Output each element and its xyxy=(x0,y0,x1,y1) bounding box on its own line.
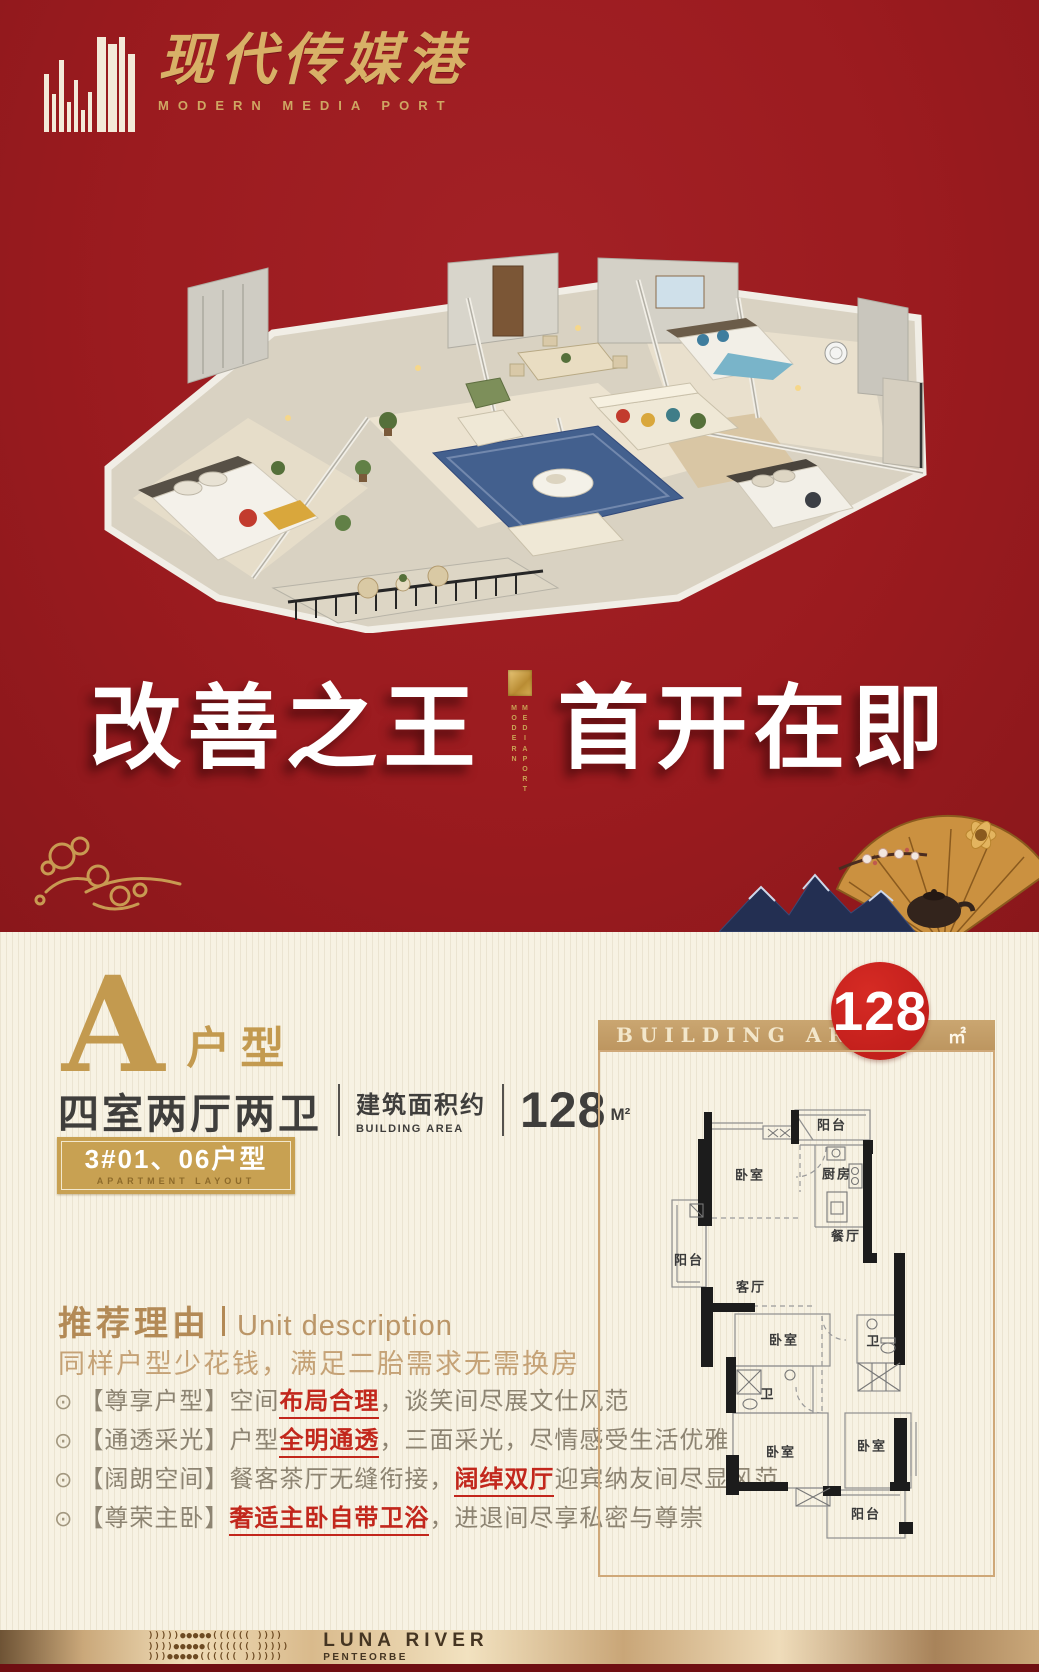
badge-title: 3#01、06户型 xyxy=(85,1145,268,1174)
room-label: 阳台 xyxy=(674,1250,704,1269)
bullet-pre: 餐客茶厅无缝衔接， xyxy=(229,1466,454,1493)
unit-description-list: ⊙【尊享户型】空间布局合理，谈笑间尽展文仕风范⊙【通透采光】户型全明通透，三面采… xyxy=(54,1390,594,1546)
bullet-pre: 空间 xyxy=(229,1388,279,1415)
bullet-highlight: 阔绰双厅 xyxy=(454,1466,554,1497)
fan-decoration-icon xyxy=(719,797,1039,932)
room-label: 卫 xyxy=(760,1384,775,1403)
unit-spec-row: 四室两厅两卫 建筑面积约 BUILDING AREA 128 M² xyxy=(58,1080,630,1140)
room-label: 卧室 xyxy=(766,1442,796,1461)
divider xyxy=(222,1306,225,1336)
room-label: 卫 xyxy=(866,1331,881,1350)
brand-name-en: MODERN MEDIA PORT xyxy=(158,98,468,113)
footer-bar: )))))●●●●●(((((( ))))))))●●●●●((((((( ))… xyxy=(0,1630,1039,1664)
footer-subtitle: PENTEORBE xyxy=(323,1652,488,1663)
area-label-en: BUILDING AREA xyxy=(356,1123,486,1135)
description-bullet: ⊙【阔朗空间】餐客茶厅无缝衔接，阔绰双厅迎宾纳友间尽显风范 xyxy=(54,1468,594,1494)
room-label: 厨房 xyxy=(822,1164,852,1183)
bullet-tag: 【尊荣主卧】 xyxy=(79,1505,229,1532)
bullet-icon: ⊙ xyxy=(54,1506,73,1531)
unit-rooms: 四室两厅两卫 xyxy=(58,1080,322,1140)
room-label: 卧室 xyxy=(769,1330,799,1349)
bullet-icon: ⊙ xyxy=(54,1389,73,1414)
apartment-3d-render xyxy=(38,168,958,633)
divider-word-2: MEDIAPORT xyxy=(522,704,528,795)
floorplan-panel: 阳台卧室厨房餐厅阳台客厅卧室卫卫卧室卧室阳台 xyxy=(598,1050,995,1577)
description-bullet: ⊙【尊享户型】空间布局合理，谈笑间尽展文仕风范 xyxy=(54,1390,594,1416)
hero-section: 现代传媒港 MODERN MEDIA PORT xyxy=(0,0,1039,932)
unit-type-label: 户型 xyxy=(186,1012,294,1076)
headline-divider: MODERN MEDIAPORT xyxy=(508,670,532,795)
moon-pattern-row: ))))●●●●●((((((( ))))) xyxy=(148,1642,289,1652)
gold-cloud-decoration-icon xyxy=(28,830,188,925)
description-bullet: ⊙【通透采光】户型全明通透，三面采光，尽情感受生活优雅 xyxy=(54,1429,594,1455)
divider xyxy=(338,1084,340,1136)
area-circle-value: 128 xyxy=(833,979,928,1043)
bullet-highlight: 奢适主卧自带卫浴 xyxy=(229,1505,429,1536)
description-subtitle: 同样户型少花钱，满足二胎需求无需换房 xyxy=(58,1342,580,1381)
bullet-pre: 户型 xyxy=(229,1427,279,1454)
apartment-badge: 3#01、06户型 APARTMENT LAYOUT xyxy=(57,1137,295,1194)
bullet-highlight: 全明通透 xyxy=(279,1427,379,1458)
moon-pattern-row: )))))●●●●●(((((( )))) xyxy=(148,1631,289,1641)
bullet-highlight: 布局合理 xyxy=(279,1388,379,1419)
moon-phase-pattern: )))))●●●●●(((((( ))))))))●●●●●((((((( ))… xyxy=(148,1631,289,1662)
unit-letter: A xyxy=(62,960,164,1092)
description-heading: 推荐理由 Unit description xyxy=(58,1296,453,1345)
bullet-icon: ⊙ xyxy=(54,1428,73,1453)
footer-title-block: LUNA RIVER PENTEORBE xyxy=(323,1631,488,1663)
description-bullet: ⊙【尊荣主卧】奢适主卧自带卫浴，进退间尽享私密与尊崇 xyxy=(54,1507,594,1533)
poster: 现代传媒港 MODERN MEDIA PORT xyxy=(0,0,1039,1672)
bullet-post: ，谈笑间尽展文仕风范 xyxy=(379,1388,629,1415)
brand-logo: 现代传媒港 MODERN MEDIA PORT xyxy=(44,30,468,138)
room-label: 客厅 xyxy=(736,1277,766,1296)
floorplan-header-bar: BUILDING AREA xyxy=(598,1020,995,1050)
divider xyxy=(502,1084,504,1136)
brand-name-cn: 现代传媒港 xyxy=(158,30,468,92)
moon-pattern-row: )))●●●●●(((((( )))))) xyxy=(148,1652,289,1662)
room-label: 卧室 xyxy=(857,1436,887,1455)
description-title-en: Unit description xyxy=(237,1310,453,1343)
room-label: 阳台 xyxy=(817,1115,847,1134)
headline-left: 改善之王 xyxy=(89,683,481,775)
divider-word-1: MODERN xyxy=(511,704,517,795)
area-value: 128 xyxy=(520,1081,606,1139)
area-circle-unit: ㎡ xyxy=(948,1023,966,1049)
bullet-tag: 【通透采光】 xyxy=(79,1427,229,1454)
building-bars-icon xyxy=(44,30,140,138)
description-title-cn: 推荐理由 xyxy=(58,1296,210,1345)
bullet-tag: 【尊享户型】 xyxy=(79,1388,229,1415)
headline-right: 首开在即 xyxy=(558,683,950,775)
badge-subtitle: APARTMENT LAYOUT xyxy=(97,1176,256,1186)
bullet-icon: ⊙ xyxy=(54,1467,73,1492)
area-label-cn: 建筑面积约 xyxy=(356,1085,486,1120)
headline: 改善之王 MODERN MEDIAPORT 首开在即 xyxy=(0,662,1039,795)
room-label: 餐厅 xyxy=(831,1226,861,1245)
unit-title: A 户型 xyxy=(62,960,294,1092)
footer-title: LUNA RIVER xyxy=(323,1631,488,1650)
brand-seal-icon xyxy=(508,670,532,696)
footer-red-strip xyxy=(0,1664,1039,1672)
bullet-tag: 【阔朗空间】 xyxy=(79,1466,229,1493)
room-label: 阳台 xyxy=(851,1504,881,1523)
floorplan-drawing xyxy=(600,1052,993,1575)
area-circle-badge: 128 xyxy=(831,962,929,1060)
room-label: 卧室 xyxy=(735,1165,765,1184)
